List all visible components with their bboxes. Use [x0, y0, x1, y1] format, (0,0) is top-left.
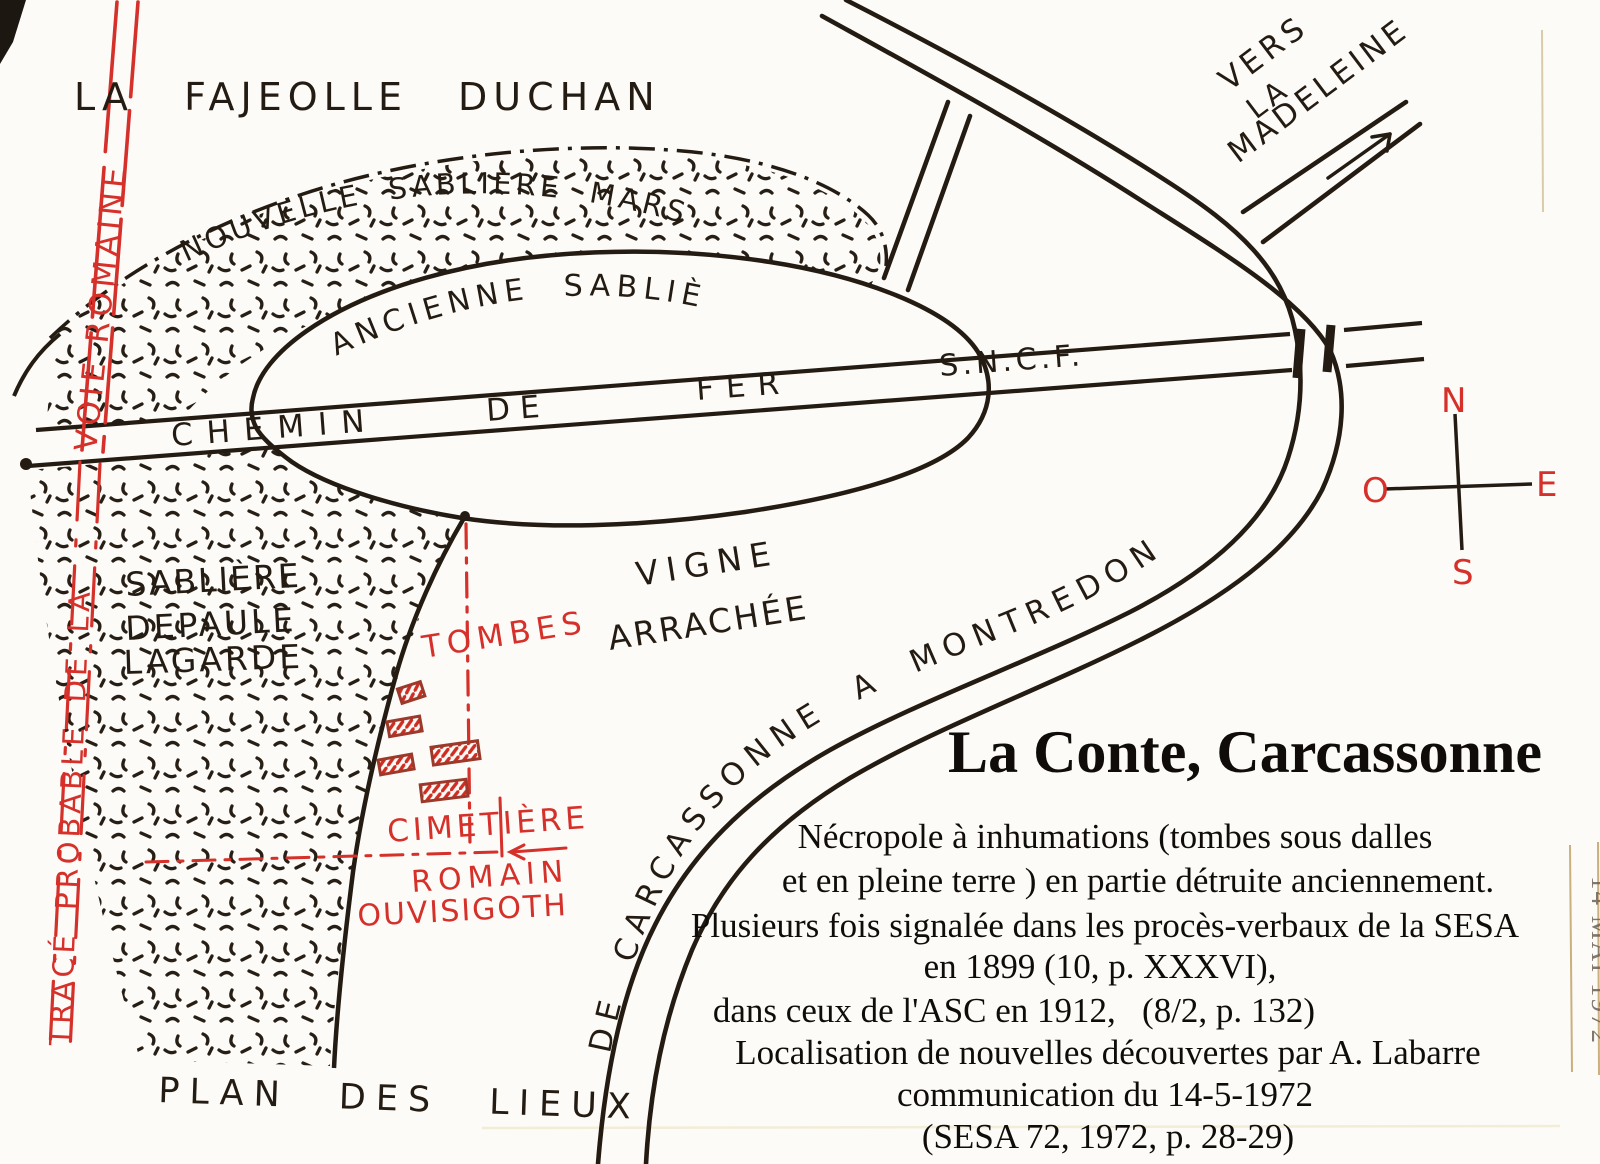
label-arrachee: ARRACHÉE — [605, 587, 811, 658]
label-la-fajeolle-duchan: LA FAJEOLLE DUCHAN — [74, 75, 661, 119]
crossing-gate-east — [1327, 325, 1331, 372]
label-railway-fer: FER — [695, 365, 792, 408]
caption-line: communication du 14-5-1972 — [897, 1075, 1313, 1114]
caption-block: La Conte, Carcassonne Nécropole à inhuma… — [691, 719, 1542, 1156]
label-plan-des-lieux: PLAN DES LIEUX — [158, 1071, 642, 1128]
tomb-mark — [431, 741, 480, 765]
stipple-lower-region — [28, 442, 462, 1066]
caption-title: La Conte, Carcassonne — [948, 719, 1542, 785]
label-vigne: VIGNE — [633, 533, 781, 594]
scan-edge-line-top — [1542, 30, 1543, 212]
railway-top-rail-east — [1344, 323, 1422, 330]
tomb-mark — [420, 779, 468, 801]
scan-edge-line-left — [1570, 845, 1572, 1072]
label-cimetiere: CIMETIÈRE — [386, 800, 590, 850]
label-tombes: TOMBES — [419, 604, 590, 666]
railway-end-dot — [20, 458, 32, 470]
tomb-marks — [378, 682, 480, 802]
label-lagarde: LAGARDE — [123, 637, 304, 682]
compass-west-label: O — [1362, 471, 1389, 511]
caption-line: dans ceux de l'ASC en 1912, (8/2, p. 132… — [713, 991, 1315, 1030]
caption-line: et en pleine terre ) en partie détruite … — [782, 861, 1494, 900]
compass-south-label: S — [1452, 553, 1474, 593]
date-stamp: 14 MAI 1972 — [1586, 876, 1600, 1045]
crossing-gate-west — [1297, 329, 1301, 378]
tomb-mark — [397, 682, 424, 704]
compass-rose: N E S O — [1362, 381, 1557, 593]
caption-line: Nécropole à inhumations (tombes sous dal… — [798, 817, 1433, 856]
branch-road-edge-1 — [884, 102, 948, 278]
compass-ns-line — [1455, 414, 1462, 550]
scanned-map-page: N E S O LA FAJEOLLE DUCHAN NOUVELLE SABL… — [0, 0, 1600, 1164]
level-crossing-gates — [1297, 325, 1331, 378]
compass-north-label: N — [1441, 381, 1466, 421]
compass-east-label: E — [1536, 465, 1557, 505]
corner-blot — [0, 0, 26, 64]
caption-line: en 1899 (10, p. XXXVI), — [924, 947, 1277, 986]
quarry-path-dot — [460, 511, 470, 521]
map-canvas: N E S O LA FAJEOLLE DUCHAN NOUVELLE SABL… — [0, 0, 1600, 1164]
tomb-mark — [387, 716, 422, 737]
caption-line: (SESA 72, 1972, p. 28-29) — [922, 1117, 1294, 1156]
caption-line: Localisation de nouvelles découvertes pa… — [735, 1033, 1480, 1072]
branch-road-edge-2 — [908, 116, 970, 290]
tomb-mark — [378, 754, 414, 775]
caption-line: Plusieurs fois signalée dans les procès-… — [691, 906, 1520, 945]
label-ouvisigoth: OUVISIGOTH — [357, 888, 569, 934]
railway-bottom-rail-east — [1346, 359, 1424, 366]
label-railway-de: DE — [485, 388, 551, 429]
